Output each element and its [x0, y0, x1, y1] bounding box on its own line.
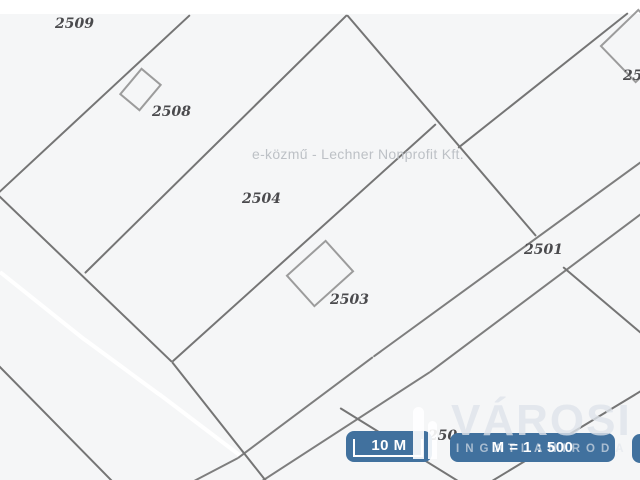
parcel-label-top-right-clipped: 250: [623, 68, 640, 84]
parcel-label-2509: 2509: [55, 16, 94, 32]
parcel-boundary-line: [562, 266, 640, 334]
parcel-label-2501: 2501: [524, 242, 563, 258]
parcel-label-2508: 2508: [152, 104, 191, 120]
road-edge: [261, 371, 430, 480]
parcel-boundary-line: [84, 14, 347, 273]
top-whitespace-band: [0, 0, 640, 14]
road-edge: [194, 457, 239, 480]
white-path-line: [83, 337, 161, 396]
clipped-edge-badge: [632, 434, 640, 463]
road-edge: [372, 161, 640, 358]
parcel-label-2503: 2503: [330, 292, 369, 308]
parcel-boundary-line: [0, 192, 173, 362]
ekozmu-watermark-text: e-közmű - Lechner Nonprofit Kft.: [252, 146, 464, 162]
scale-bar-icon: [353, 439, 423, 457]
parcel-boundary-line: [346, 14, 537, 236]
white-path-line: [0, 270, 86, 341]
scale-bar-badge: 10 M: [346, 431, 432, 462]
map-ratio-label: M = 1 : 500: [450, 433, 615, 462]
parcel-label-2504: 2504: [242, 191, 281, 207]
parcel-boundary-line: [0, 364, 113, 480]
map-canvas[interactable]: 25092508250425032501250250 e-közmű - Lec…: [0, 0, 640, 480]
parcel-boundary-line: [171, 361, 267, 480]
map-ratio-badge: M = 1 : 500: [450, 433, 615, 462]
white-path-line: [158, 392, 243, 458]
parcel-boundary-line: [457, 12, 628, 149]
